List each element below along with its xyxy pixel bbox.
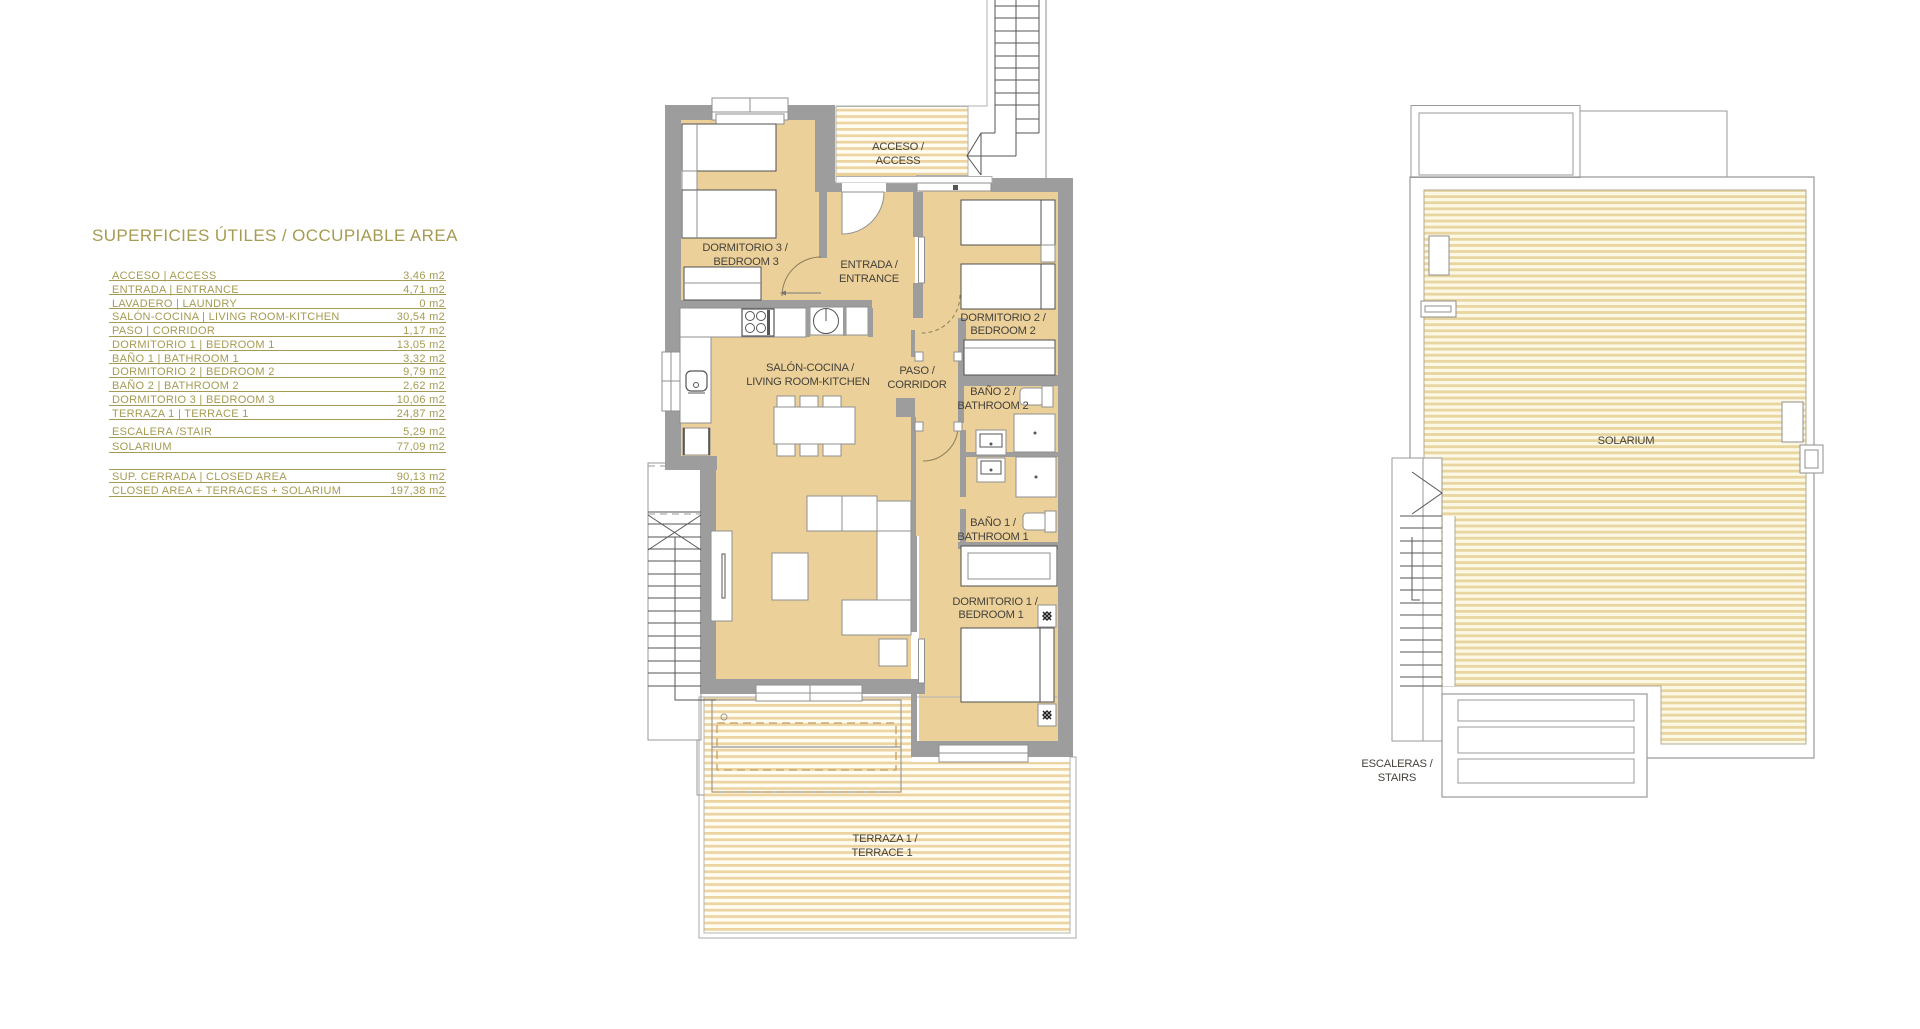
svg-text:TERRAZA 1 /: TERRAZA 1 / (853, 833, 919, 845)
svg-text:BATHROOM 2: BATHROOM 2 (957, 400, 1028, 412)
svg-text:1,17 m2: 1,17 m2 (403, 325, 445, 337)
svg-text:TERRACE 1: TERRACE 1 (852, 847, 913, 859)
svg-text:24,87 m2: 24,87 m2 (397, 408, 445, 420)
svg-text:DORMITORIO 3 /: DORMITORIO 3 / (702, 242, 788, 254)
svg-text:BATHROOM 1: BATHROOM 1 (957, 531, 1028, 543)
svg-text:DORMITORIO 1 | BEDROOM 1: DORMITORIO 1 | BEDROOM 1 (112, 339, 275, 351)
svg-text:BAÑO 2 | BATHROOM 2: BAÑO 2 | BATHROOM 2 (112, 379, 239, 392)
svg-text:DORMITORIO 2 | BEDROOM 2: DORMITORIO 2 | BEDROOM 2 (112, 366, 275, 378)
svg-text:ACCESO /: ACCESO / (872, 141, 925, 153)
svg-text:BEDROOM 2: BEDROOM 2 (970, 325, 1035, 337)
svg-text:90,13 m2: 90,13 m2 (397, 471, 445, 483)
svg-text:30,54 m2: 30,54 m2 (397, 311, 445, 323)
svg-text:13,05 m2: 13,05 m2 (397, 339, 445, 351)
svg-text:SUP. CERRADA | CLOSED AREA: SUP. CERRADA | CLOSED AREA (112, 471, 287, 483)
svg-text:CORRIDOR: CORRIDOR (887, 379, 946, 391)
svg-text:STAIRS: STAIRS (1378, 772, 1416, 784)
svg-text:ENTRADA /: ENTRADA / (840, 259, 898, 271)
svg-text:CLOSED AREA + TERRACES + SOLAR: CLOSED AREA + TERRACES + SOLARIUM (112, 485, 341, 497)
svg-text:DORMITORIO 1 /: DORMITORIO 1 / (952, 596, 1038, 608)
svg-text:SOLARIUM: SOLARIUM (1598, 435, 1655, 447)
svg-text:ACCESS: ACCESS (876, 155, 921, 167)
svg-text:ESCALERAS /: ESCALERAS / (1361, 758, 1433, 770)
svg-text:BAÑO 2 /: BAÑO 2 / (970, 385, 1017, 398)
svg-text:10,06 m2: 10,06 m2 (397, 394, 445, 406)
svg-text:ESCALERA /STAIR: ESCALERA /STAIR (112, 426, 212, 438)
svg-text:2,62 m2: 2,62 m2 (403, 380, 445, 392)
svg-text:SUPERFICIES ÚTILES / OCCUPIABL: SUPERFICIES ÚTILES / OCCUPIABLE AREA (92, 226, 458, 245)
svg-text:BAÑO 1 /: BAÑO 1 / (970, 516, 1017, 529)
svg-text:PASO | CORRIDOR: PASO | CORRIDOR (112, 325, 215, 337)
svg-text:197,38 m2: 197,38 m2 (390, 485, 445, 497)
svg-text:ENTRANCE: ENTRANCE (839, 273, 899, 285)
svg-text:SALÓN-COCINA | LIVING ROOM-KIT: SALÓN-COCINA | LIVING ROOM-KITCHEN (112, 310, 340, 323)
svg-text:SALÓN-COCINA /: SALÓN-COCINA / (766, 361, 855, 374)
svg-text:LIVING ROOM-KITCHEN: LIVING ROOM-KITCHEN (746, 376, 870, 388)
svg-text:5,29 m2: 5,29 m2 (403, 426, 445, 438)
svg-text:TERRAZA 1 | TERRACE 1: TERRAZA 1 | TERRACE 1 (112, 408, 249, 420)
svg-text:BEDROOM 3: BEDROOM 3 (713, 256, 778, 268)
svg-text:9,79 m2: 9,79 m2 (403, 366, 445, 378)
svg-text:SOLARIUM: SOLARIUM (112, 441, 172, 453)
svg-text:DORMITORIO 2 /: DORMITORIO 2 / (960, 312, 1046, 324)
svg-text:PASO /: PASO / (899, 365, 935, 377)
svg-text:BEDROOM 1: BEDROOM 1 (958, 609, 1023, 621)
svg-text:77,09 m2: 77,09 m2 (397, 441, 445, 453)
svg-text:DORMITORIO 3 | BEDROOM 3: DORMITORIO 3 | BEDROOM 3 (112, 394, 275, 406)
